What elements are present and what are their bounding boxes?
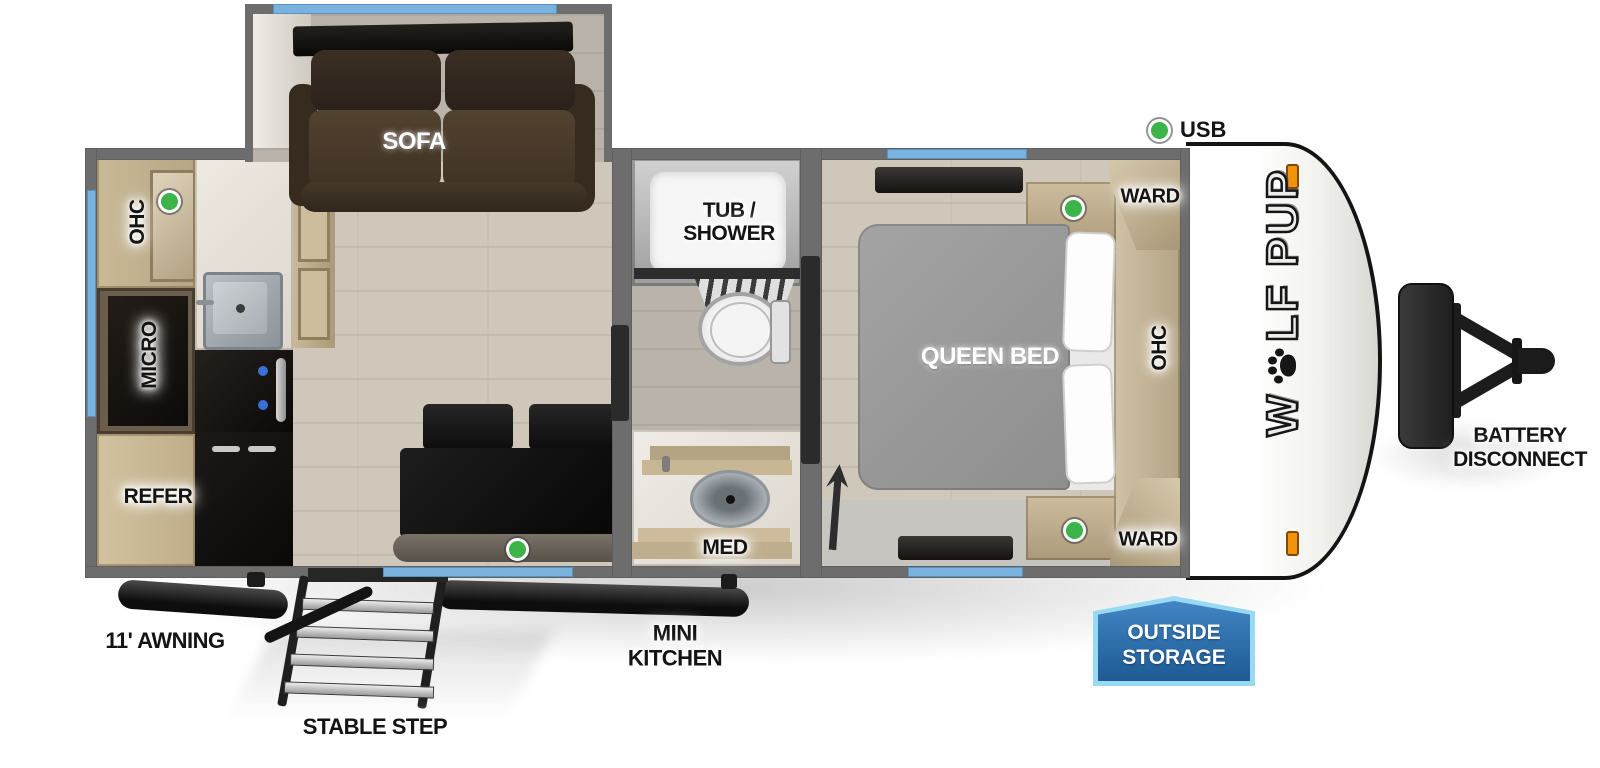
- upper-cabinet-door-2: [298, 268, 330, 340]
- sink-drain: [236, 304, 245, 313]
- logo-prefix: W: [1258, 392, 1308, 437]
- oven-handle: [276, 358, 286, 422]
- sofa-seat-cushion-2: [443, 110, 575, 188]
- logo-suffix: LF PUP: [1258, 168, 1308, 342]
- outside-storage-badge: OUTSIDE STORAGE: [1093, 596, 1255, 686]
- bathroom-pocket-door-left: [611, 325, 629, 421]
- oven-knob-1: [258, 366, 268, 376]
- sofa-front-bolster: [301, 182, 587, 212]
- wall-top-left: [85, 148, 257, 160]
- toilet-seat: [710, 302, 772, 358]
- ward-bottom-label: WARD: [1118, 529, 1177, 552]
- dinette-chair-2: [529, 404, 619, 450]
- pillow-2: [1062, 363, 1116, 485]
- vanity-faucet: [662, 456, 670, 472]
- med-label: MED: [702, 536, 747, 560]
- awning-bracket-left: [247, 572, 265, 587]
- oven-knob-2: [258, 400, 268, 410]
- window-bedroom-top: [887, 149, 1027, 159]
- paw-icon: [1266, 350, 1300, 384]
- bed-shelf-bottom: [898, 536, 1013, 560]
- shower-door-track: [634, 268, 802, 279]
- floorplan-canvas: BATTERY DISCONNECT W LF PUP: [0, 0, 1600, 768]
- ohc-kitchen-label: OHC: [126, 199, 150, 244]
- step-shadow: [226, 630, 554, 720]
- clearance-light-bottom: [1286, 531, 1299, 556]
- wolf-pup-logo: W LF PUP: [1258, 168, 1308, 437]
- battery-box: [1398, 283, 1454, 449]
- hitch-coupler: [1518, 348, 1555, 374]
- bathroom-sliding-door-right: [801, 256, 820, 464]
- window-bedroom-bottom: [908, 567, 1023, 577]
- queen-bed-label: QUEEN BED: [921, 343, 1059, 371]
- sofa-back-cushion-1: [311, 50, 441, 112]
- micro-label: MICRO: [138, 321, 162, 389]
- window-rear-left: [87, 190, 96, 417]
- vanity-sink-drain: [726, 495, 735, 504]
- ohc-cabinet-door: [150, 170, 196, 282]
- pillow-1: [1062, 231, 1116, 353]
- awning-bracket-right: [721, 574, 737, 589]
- sofa-label: SOFA: [382, 128, 445, 156]
- battery-disconnect-label: BATTERY DISCONNECT: [1453, 424, 1587, 472]
- vanity-tier-top: [650, 446, 790, 460]
- bed-shelf-top: [875, 167, 1023, 193]
- usb-label: USB: [1180, 117, 1226, 143]
- outside-storage-text: OUTSIDE STORAGE: [1093, 620, 1255, 670]
- ward-top-label: WARD: [1120, 186, 1179, 209]
- led-dot-ward-bottom: [1063, 519, 1086, 542]
- awning-label: 11' AWNING: [105, 628, 224, 654]
- ohc-bedroom-label: OHC: [1148, 325, 1172, 370]
- sofa: [293, 24, 595, 214]
- tub-shower-label: TUB / SHOWER: [683, 199, 775, 245]
- base-cabinet: [195, 432, 293, 566]
- mini-kitchen-label: MINI KITCHEN: [628, 621, 722, 672]
- faucet: [196, 300, 214, 305]
- stable-step-label: STABLE STEP: [303, 714, 447, 740]
- led-dot-kitchen-ohc: [158, 190, 181, 213]
- led-dot-dinette: [506, 538, 529, 561]
- wall-bedroom-front: [1180, 148, 1190, 578]
- toilet-tank: [770, 300, 791, 364]
- window-slideout-top: [273, 4, 557, 14]
- dinette-table: [400, 448, 624, 538]
- usb-dot: [1148, 119, 1171, 142]
- refer-label: REFER: [124, 485, 193, 509]
- sofa-back-cushion-2: [445, 50, 575, 112]
- cabinet-handle-1: [212, 446, 240, 452]
- window-living-bottom: [383, 567, 573, 577]
- cabinet-handle-2: [248, 446, 276, 452]
- dinette-chair-1: [423, 404, 513, 450]
- led-dot-ward-top: [1062, 197, 1085, 220]
